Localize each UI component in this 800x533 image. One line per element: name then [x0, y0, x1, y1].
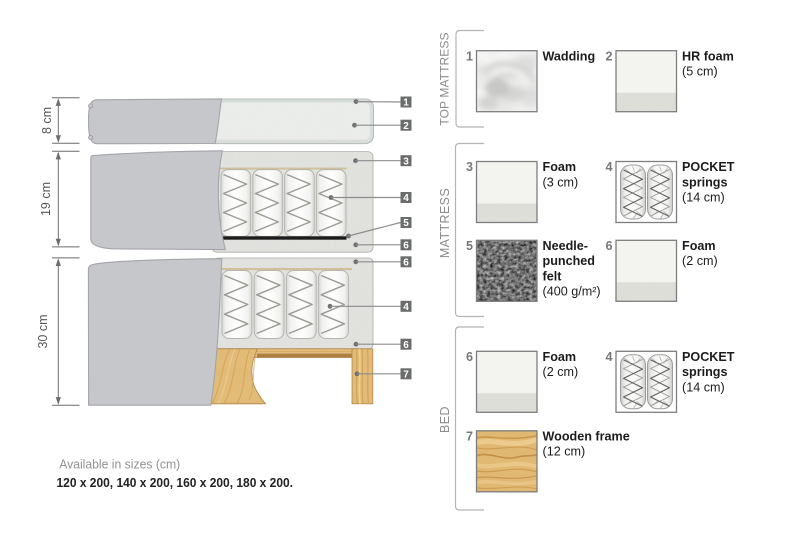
svg-text:6: 6 [403, 257, 409, 268]
svg-text:4: 4 [605, 350, 612, 364]
svg-text:BED: BED [438, 406, 452, 433]
svg-text:7: 7 [466, 429, 473, 443]
svg-text:6: 6 [605, 239, 612, 253]
svg-text:4: 4 [403, 302, 409, 313]
svg-text:5: 5 [466, 239, 473, 253]
svg-text:1: 1 [403, 98, 409, 109]
svg-text:Wadding: Wadding [543, 49, 596, 63]
svg-text:Foam(2 cm): Foam(2 cm) [543, 350, 579, 379]
svg-text:19 cm: 19 cm [39, 182, 53, 216]
svg-text:2: 2 [403, 121, 409, 132]
svg-text:30 cm: 30 cm [36, 314, 50, 348]
svg-text:Foam(2 cm): Foam(2 cm) [682, 239, 718, 268]
svg-text:MATTRESS: MATTRESS [438, 188, 452, 258]
svg-text:3: 3 [403, 156, 409, 167]
svg-text:6: 6 [403, 340, 409, 351]
svg-text:TOP MATTRESS: TOP MATTRESS [438, 32, 452, 125]
svg-text:7: 7 [403, 369, 409, 380]
svg-text:8 cm: 8 cm [40, 107, 54, 134]
svg-text:4: 4 [605, 160, 612, 174]
svg-text:6: 6 [466, 350, 473, 364]
svg-text:4: 4 [403, 193, 409, 204]
svg-text:3: 3 [466, 160, 473, 174]
svg-text:5: 5 [403, 218, 409, 229]
svg-text:Foam(3 cm): Foam(3 cm) [543, 160, 579, 189]
svg-text:Available in sizes (cm): Available in sizes (cm) [59, 457, 180, 471]
svg-text:120 x 200, 140 x 200, 160 x 20: 120 x 200, 140 x 200, 160 x 200, 180 x 2… [57, 476, 294, 490]
svg-text:1: 1 [466, 49, 473, 63]
svg-text:2: 2 [605, 49, 612, 63]
svg-text:6: 6 [403, 240, 409, 251]
